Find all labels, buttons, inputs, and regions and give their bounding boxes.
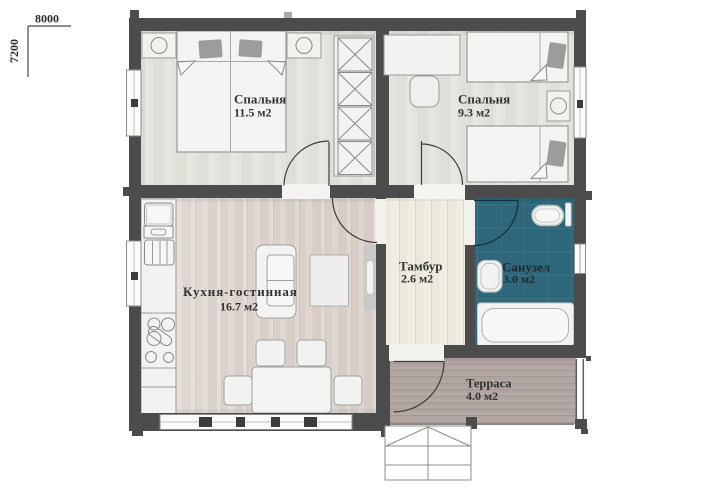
svg-text:7200: 7200 xyxy=(7,39,21,63)
svg-text:Спальня: Спальня xyxy=(458,92,510,107)
svg-text:16.7 м2: 16.7 м2 xyxy=(220,300,258,314)
svg-text:3.0 м2: 3.0 м2 xyxy=(503,272,535,286)
svg-text:2.6 м2: 2.6 м2 xyxy=(401,272,433,286)
svg-text:8000: 8000 xyxy=(35,12,59,26)
svg-text:Кухня-гостинная: Кухня-гостинная xyxy=(183,284,298,299)
svg-text:Спальня: Спальня xyxy=(234,92,286,107)
svg-text:9.3 м2: 9.3 м2 xyxy=(458,106,490,120)
svg-text:4.0 м2: 4.0 м2 xyxy=(466,389,498,403)
svg-text:11.5 м2: 11.5 м2 xyxy=(234,106,272,120)
